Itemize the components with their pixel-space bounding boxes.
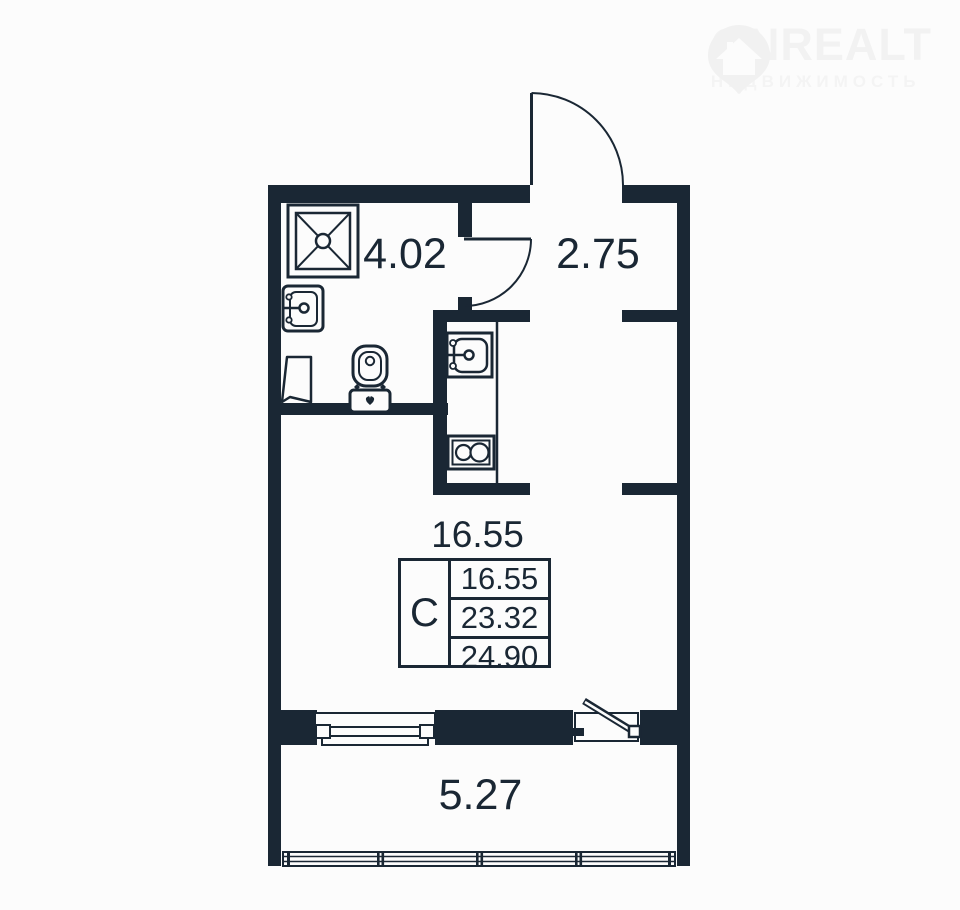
map-pin-house-icon [703, 22, 775, 96]
area-table: С 16.55 23.32 24.90 [398, 558, 551, 668]
bathroom-area-label: 4.02 [340, 233, 470, 276]
living-area-value: 16.55 [451, 561, 548, 600]
balcony-area-label: 5.27 [418, 774, 543, 817]
balcony-door [573, 701, 640, 741]
window [315, 713, 435, 745]
floor-plan: 4.02 2.75 16.55 5.27 С 16.55 23.32 24.90… [0, 0, 960, 910]
apartment-area-value: 23.32 [451, 600, 548, 639]
hallway-area-label: 2.75 [538, 233, 658, 276]
total-area-value: 24.90 [451, 639, 548, 675]
balcony-glazing [283, 852, 675, 866]
kitchen-sink-icon [447, 333, 492, 377]
entrance-door [532, 93, 624, 185]
apartment-type-label: С [401, 561, 451, 665]
cabinet-icon [282, 357, 311, 402]
onrealt-watermark: ONREALT НЕДВИЖИМОСТЬ [703, 22, 932, 90]
toilet-icon [350, 346, 390, 412]
bathroom-sink-icon [283, 286, 323, 331]
bathroom-door [464, 239, 531, 306]
stove-icon [448, 436, 494, 469]
living-area-label: 16.55 [415, 516, 540, 553]
